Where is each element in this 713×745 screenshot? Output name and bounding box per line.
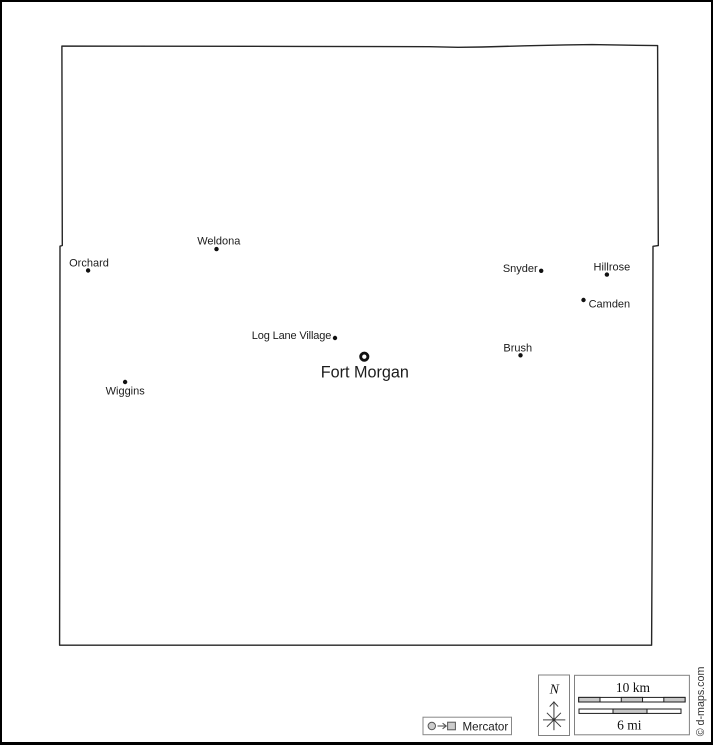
svg-text:Weldona: Weldona bbox=[197, 235, 241, 247]
svg-text:Brush: Brush bbox=[503, 342, 532, 354]
svg-text:Fort Morgan: Fort Morgan bbox=[321, 364, 409, 382]
svg-text:Mercator: Mercator bbox=[463, 720, 509, 733]
svg-text:© d-maps.com: © d-maps.com bbox=[695, 667, 707, 737]
svg-text:Snyder: Snyder bbox=[503, 263, 538, 275]
svg-text:Wiggins: Wiggins bbox=[106, 385, 146, 397]
svg-text:N: N bbox=[549, 683, 560, 698]
svg-text:Orchard: Orchard bbox=[69, 257, 109, 269]
svg-text:Hillrose: Hillrose bbox=[594, 262, 631, 274]
svg-text:6 mi: 6 mi bbox=[617, 717, 642, 732]
svg-text:Log Lane Village: Log Lane Village bbox=[252, 330, 331, 342]
svg-text:Camden: Camden bbox=[589, 299, 631, 311]
svg-text:10 km: 10 km bbox=[616, 680, 651, 695]
